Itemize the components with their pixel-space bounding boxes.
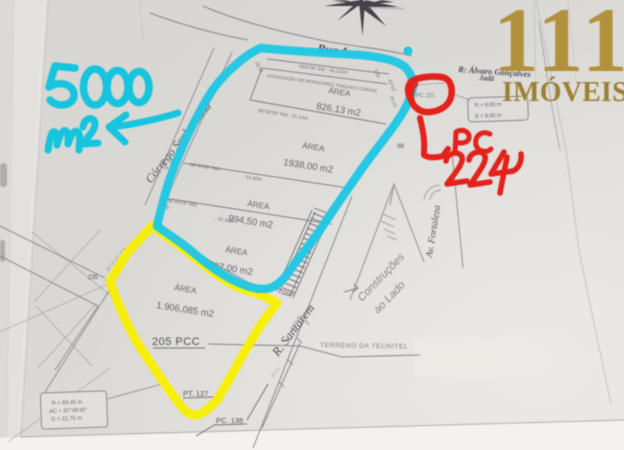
svg-text:E = 9,00 m: E = 9,00 m bbox=[475, 113, 502, 120]
svg-text:98: 98 bbox=[397, 143, 404, 150]
svg-text:D = 22,75 m: D = 22,75 m bbox=[51, 416, 82, 423]
svg-text:205 PCC: 205 PCC bbox=[152, 336, 200, 348]
svg-text:R = 83,45 m: R = 83,45 m bbox=[52, 400, 83, 407]
svg-text:IMÓVEIS: IMÓVEIS bbox=[502, 77, 624, 108]
svg-text:PC. 221: PC. 221 bbox=[416, 93, 435, 99]
svg-text:235: 235 bbox=[88, 275, 99, 281]
svg-text:PC. 138: PC. 138 bbox=[216, 416, 243, 425]
svg-text:R = 6,00 m: R = 6,00 m bbox=[475, 102, 502, 109]
svg-text:PT. 127: PT. 127 bbox=[183, 389, 208, 398]
